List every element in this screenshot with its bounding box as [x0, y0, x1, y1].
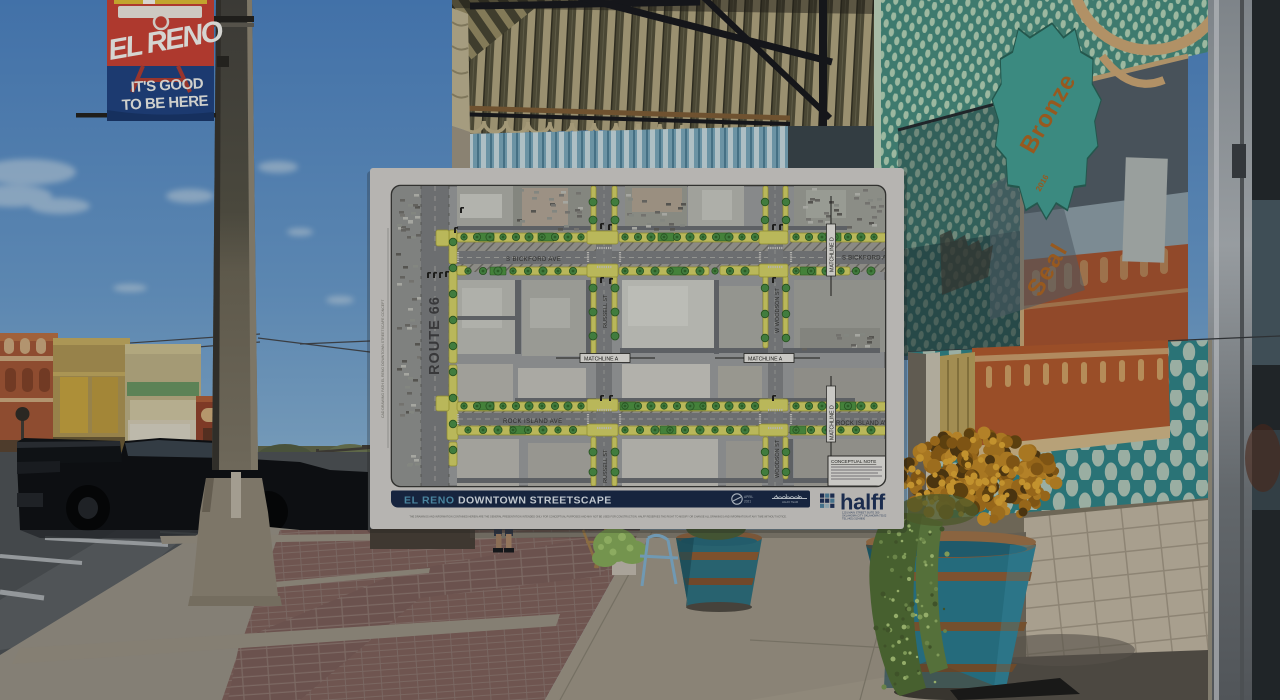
svg-text:ROCK ISLAND AVE: ROCK ISLAND AVE [503, 419, 563, 425]
svg-text:MATCHLINE A: MATCHLINE A [584, 356, 619, 362]
svg-text:HALFF TEAM: HALFF TEAM [782, 500, 798, 504]
svg-text:WOODSON ST: WOODSON ST [775, 439, 781, 478]
svg-text:EL RENO: EL RENO [404, 495, 455, 507]
svg-text:TEL (405) 319-8800: TEL (405) 319-8800 [842, 517, 866, 521]
svg-text:THE DRAWINGS AND INFORMATION C: THE DRAWINGS AND INFORMATION CONTAINED H… [409, 516, 787, 519]
svg-text:MATCHLINE A: MATCHLINE A [748, 356, 783, 362]
svg-text:APRIL: APRIL [744, 495, 753, 499]
svg-text:ROCK ISLAND AVE: ROCK ISLAND AVE [836, 421, 893, 427]
svg-text:MATCHLINE D: MATCHLINE D [830, 405, 836, 440]
svg-text:MATCHLINE D: MATCHLINE D [830, 237, 836, 272]
svg-text:RUSSELL ST: RUSSELL ST [603, 294, 609, 328]
svg-text:CONCEPTUAL NOTE: CONCEPTUAL NOTE [831, 459, 876, 464]
svg-text:RUSSELL ST: RUSSELL ST [603, 449, 609, 483]
svg-text:S BICKFORD AVE: S BICKFORD AVE [506, 257, 561, 263]
svg-text:ROUTE 66: ROUTE 66 [427, 296, 443, 375]
svg-text:CAD DRAWING PATH EL RENO DOWNT: CAD DRAWING PATH EL RENO DOWNTOWN STREET… [381, 299, 385, 418]
svg-text:DOWNTOWN STREETSCAPE: DOWNTOWN STREETSCAPE [458, 495, 612, 507]
svg-text:W WOODSON ST: W WOODSON ST [775, 287, 781, 333]
svg-text:2021: 2021 [744, 500, 751, 504]
